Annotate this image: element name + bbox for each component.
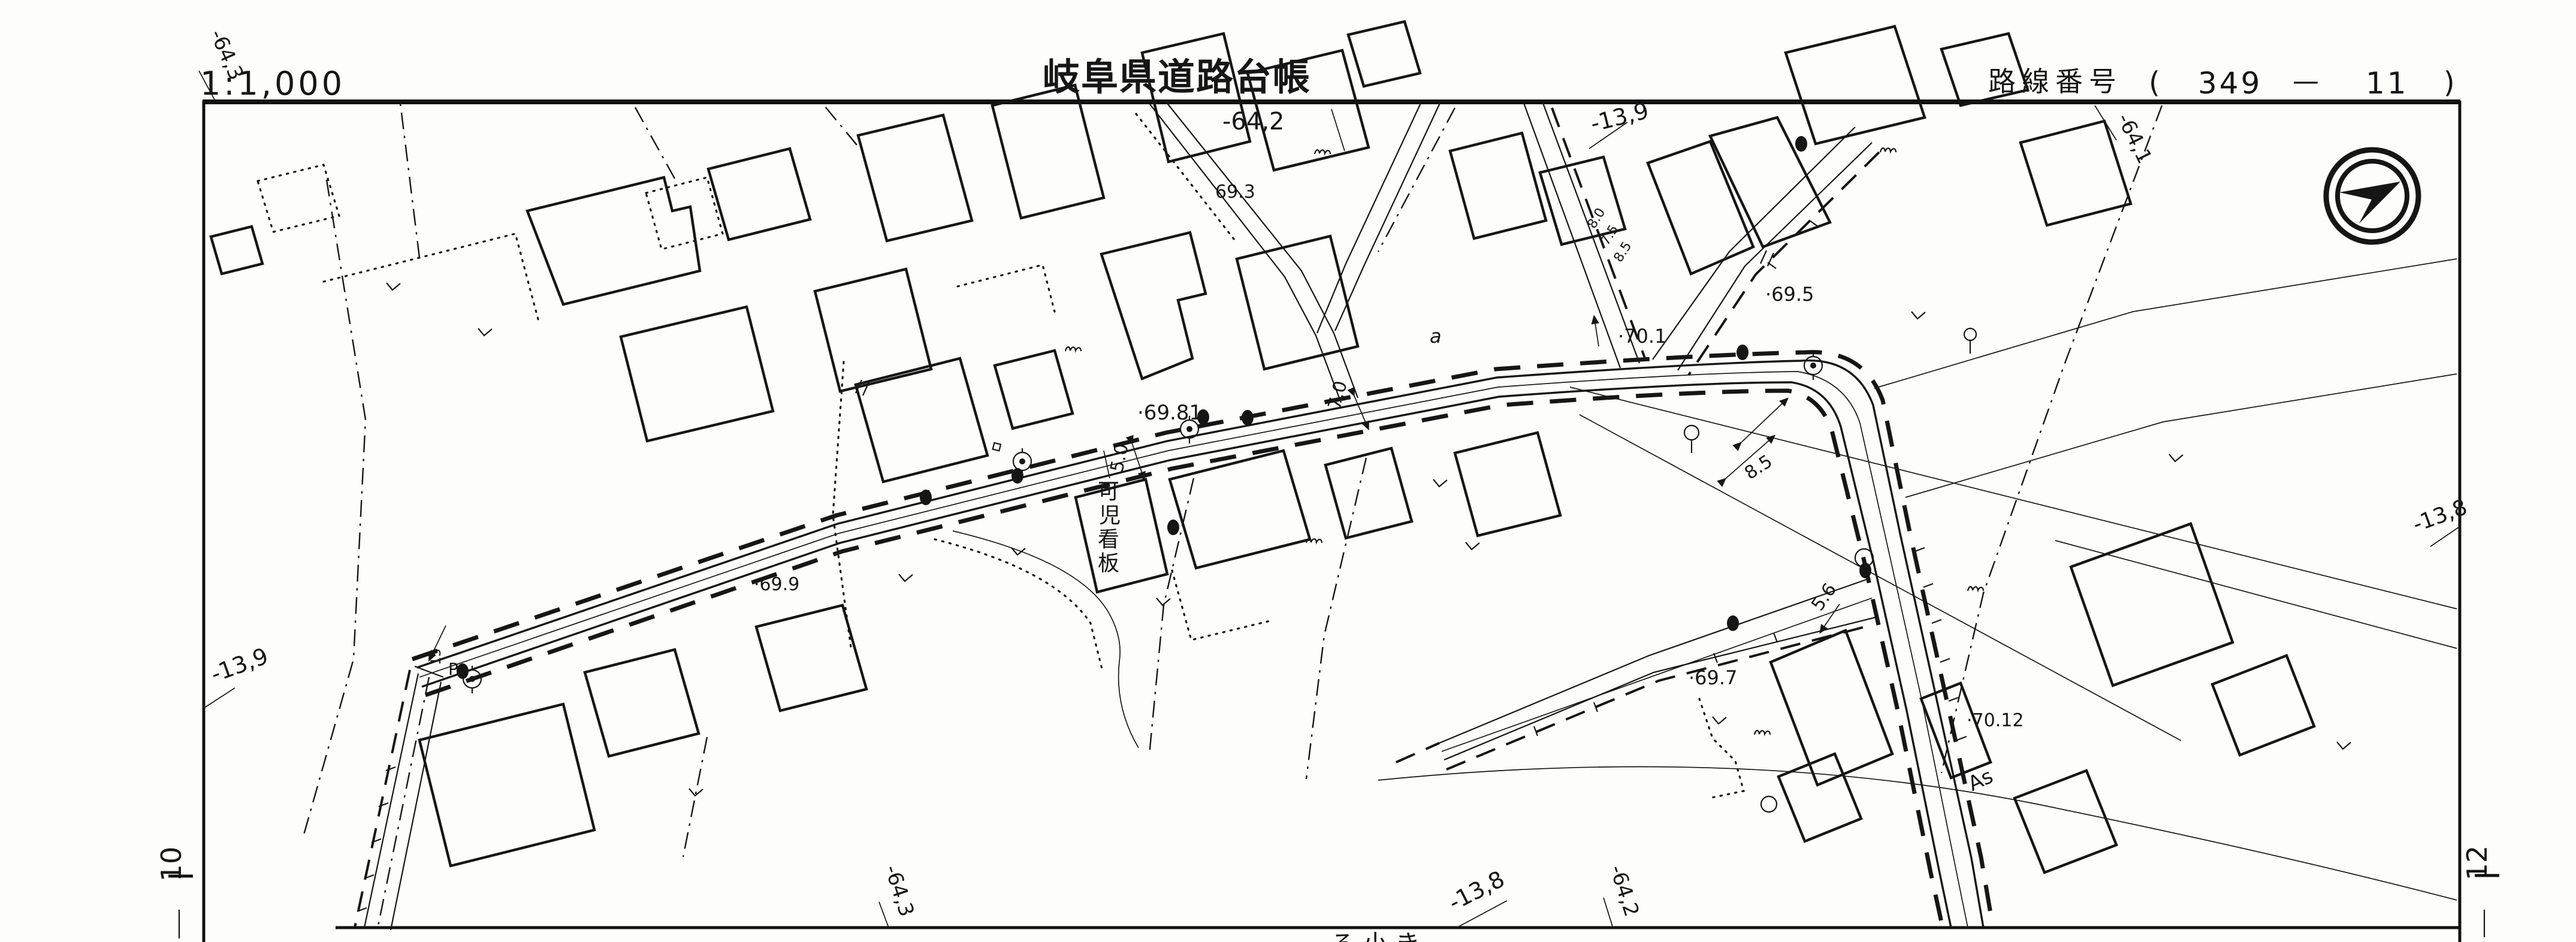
side-street-edge [1653,127,1855,360]
parcel-check-mark [1433,479,1447,487]
north-arrow-icon [2326,150,2418,242]
building-outline [815,269,931,391]
road-width-label: 8.5 [1741,451,1776,484]
buildings [211,22,2314,872]
edge-tick [1940,659,1950,662]
svg-text:板: 板 [1098,551,1119,576]
road-ledger-sheet: 1:1,000 岐阜県道路台帳 路線番号 ( 349 — 11 ) [0,0,2576,942]
edge-tick [1957,736,1967,740]
grid-tick [879,902,889,928]
grid-coordinate: -13,9 [207,642,271,687]
side-street-edge [1335,102,1440,331]
svg-text:看: 看 [1098,527,1119,552]
parcel-boundary [303,180,366,839]
flag-point [1964,328,1976,354]
building-outline [2071,524,2233,686]
grid-tick [1331,109,1345,151]
benchmark-symbol [1804,352,1822,380]
cross-street-center [1442,598,1872,751]
hatch-tick [386,767,395,771]
boundary-line [1874,259,2457,388]
grid-coordinate: -13,8 [1444,865,1509,916]
survey-dot [1011,468,1023,484]
road-width-label: 5.0 [1107,442,1133,474]
terrain-line [1378,767,2457,901]
header: 1:1,000 岐阜県道路台帳 路線番号 ( 349 — 11 ) [200,55,2455,102]
cross-street-edge [1439,579,1868,743]
tree-icon [1754,730,1770,735]
building-outline-dotted [646,177,723,249]
stub-road-boundary [355,670,410,928]
route-number-value: 349 [2198,66,2262,101]
svg-text:児: 児 [1099,503,1121,528]
building-outline [856,358,987,482]
edge-tick [1774,633,1777,642]
cross-street-boundary [1396,743,1439,762]
open-circle-point [1761,796,1777,812]
leader-arrow [1594,319,1599,346]
parcel-boundary [633,103,675,179]
grid-coordinate: -64,2 [1222,108,1285,135]
building-outline [2212,656,2314,755]
parcel-check-mark [1713,717,1726,724]
elevation-label: ·69.9 [754,574,799,595]
parcel-check-mark [1911,312,1925,319]
point-label: a [1430,325,1442,348]
grid-coordinate: -64,3 [880,862,919,920]
parcel-dotted [958,265,1055,312]
elevation-label: ·70.1 [1618,325,1666,348]
survey-dot [1727,615,1739,631]
clipped-bottom-text: ろ小き [1330,929,1427,942]
flag-point [1684,425,1699,453]
svg-text:可: 可 [1098,479,1119,504]
north-arrow-dart [2339,182,2400,224]
stub-road-center [378,677,429,929]
building-outline [1455,433,1560,536]
parcel-check-mark [1156,598,1170,605]
parcel-check-mark [386,283,400,290]
building-outline [1786,26,1925,144]
elevation-label: ·70.12 [1967,710,2024,731]
tree-icon [1065,347,1081,351]
building-outline [419,704,594,866]
grid-tick [1603,898,1613,928]
building-outline [621,307,773,441]
building-outline [1778,754,1861,841]
parcel-boundary [683,737,707,857]
road-width-label: 8.0 [1585,206,1609,231]
parcel-check-mark [1466,542,1479,549]
building-outline [992,85,1104,218]
parcel-check-mark [899,574,913,581]
route-branch-value: 11 [2366,66,2409,101]
side-street-boundary [1378,108,1455,252]
boundary-line [1905,374,2457,497]
stub-road-edge [364,674,418,928]
station-label: P [448,659,458,679]
survey-dot [1795,136,1807,152]
building-outline [1101,233,1206,379]
edge-tick [1923,584,1933,587]
elevation-label: ·69.81 [1137,401,1202,425]
terrain-line [2055,541,2457,648]
elevation-label: ·69.7 [1689,666,1737,689]
tree-icon [1880,148,1896,152]
width-arrow [1739,400,1786,445]
cross-street-edge [1444,617,1876,760]
building-outline [708,149,810,240]
building-outline [1325,448,1412,538]
route-number-label: 路線番号 [1988,65,2122,98]
road-width-label: 8.5 [1611,239,1635,265]
parcel-dotted [324,234,539,324]
building-outline-dotted [258,165,339,232]
edge-tick [1949,698,1958,701]
map-frame [203,101,2460,942]
building-outline [1648,141,1753,274]
width-arrow [1353,393,1367,427]
building-outline [1170,451,1310,568]
parcel-dotted [1699,699,1744,798]
signboard-label: 可 児 看 板 [1098,479,1121,576]
survey-dot [1737,345,1748,360]
building-outline [995,351,1073,428]
parcel-dotted [1172,570,1270,640]
edge-tick [1915,548,1925,551]
boundary-line [1570,387,2457,609]
survey-dot [920,490,932,505]
survey-dot [1859,563,1871,578]
double-tick-mark [1760,250,1774,266]
route-close-paren: ) [2444,66,2455,99]
building-outline [1348,22,1420,86]
road-area-boundary-south [425,391,1943,928]
road-end-bar [415,666,443,677]
side-street-boundary [1552,108,1645,360]
building-outline [1450,133,1546,238]
map-labels: 69.3 ·69.5 ·70.1 ·69.81 ·69.9 ·69.7 ·70.… [429,182,2024,942]
small-square-point [993,443,1001,451]
building-outline [211,227,262,274]
parcel-boundary [822,103,857,145]
parcel-boundary [400,103,419,258]
tree-icon [1315,150,1330,154]
side-street-dotted-border [1136,114,1234,240]
grid-coordinate: -64,2 [1605,862,1644,920]
elevation-label: ·69.5 [1765,283,1814,306]
building-outline [756,605,866,711]
building-outline [2015,771,2116,872]
survey-dot [457,663,469,679]
edge-tick [1932,620,1941,623]
grid-coordinate: -13,8 [2409,495,2471,537]
parcel-check-mark [2169,454,2183,461]
parcel-check-mark [2337,742,2351,749]
side-street-edge [1317,102,1421,333]
route-open-paren: ( [2149,66,2160,99]
elevation-label: 69.3 [1215,182,1255,203]
grid-ticks: -64,3 -64,2 -13,9 -64,1 -13,9 -13,8 -64,… [155,26,2499,938]
parcel-lines [303,103,1967,911]
route-dash: — [2293,66,2319,96]
survey-dot [1167,520,1179,535]
building-outline [1771,630,1892,785]
parcel-check-mark [478,328,492,336]
building-outline [585,650,699,756]
map-canvas: 1:1,000 岐阜県道路台帳 路線番号 ( 349 — 11 ) [0,0,2576,942]
station-label: 15 [429,648,444,665]
building-outline [527,177,700,304]
boundary-line [1580,415,2181,741]
grid-tick [203,688,235,709]
tree-icon [1968,587,1983,591]
page-title: 岐阜県道路台帳 [1043,55,1311,99]
road-network [355,102,2457,930]
terrain-dotted [935,539,1103,671]
road-edge-north [417,361,1983,928]
edge-tick [1810,221,1818,227]
survey-dot [1242,410,1254,425]
building-outline [1076,479,1167,592]
boundary-line [1941,105,2162,773]
building-outline [858,115,972,241]
